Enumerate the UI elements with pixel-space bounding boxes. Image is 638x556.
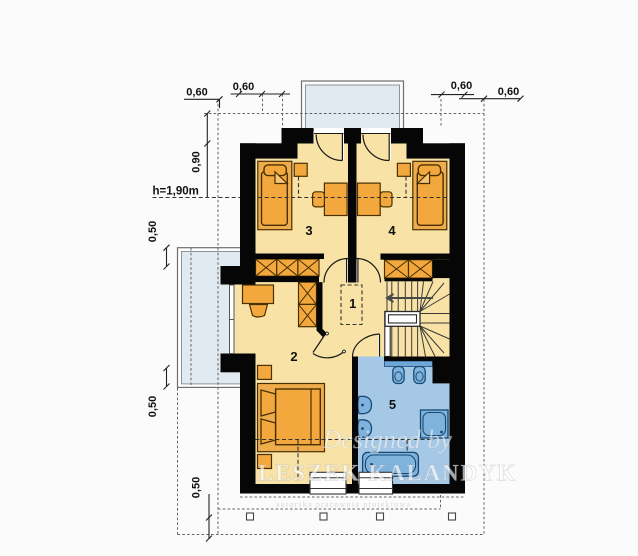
svg-text:0,50: 0,50	[191, 477, 203, 498]
svg-text:1: 1	[349, 296, 356, 311]
svg-text:0,50: 0,50	[147, 396, 159, 417]
svg-text:autorska pracownia projektowa: autorska pracownia projektowa	[276, 500, 411, 509]
svg-text:h=1,90m: h=1,90m	[153, 186, 199, 198]
svg-text:0,60: 0,60	[186, 87, 207, 99]
svg-text:2: 2	[290, 349, 297, 364]
svg-text:0,50: 0,50	[147, 221, 159, 242]
svg-text:5: 5	[389, 397, 396, 412]
svg-text:0,60: 0,60	[233, 81, 254, 93]
svg-text:4: 4	[388, 223, 396, 238]
svg-text:0,60: 0,60	[498, 86, 519, 98]
svg-text:3: 3	[305, 223, 312, 238]
svg-text:Designed by: Designed by	[322, 425, 453, 454]
svg-text:0,90: 0,90	[191, 151, 203, 172]
svg-text:LESZEK KALANDYK: LESZEK KALANDYK	[258, 461, 517, 486]
svg-text:0,60: 0,60	[451, 80, 472, 92]
